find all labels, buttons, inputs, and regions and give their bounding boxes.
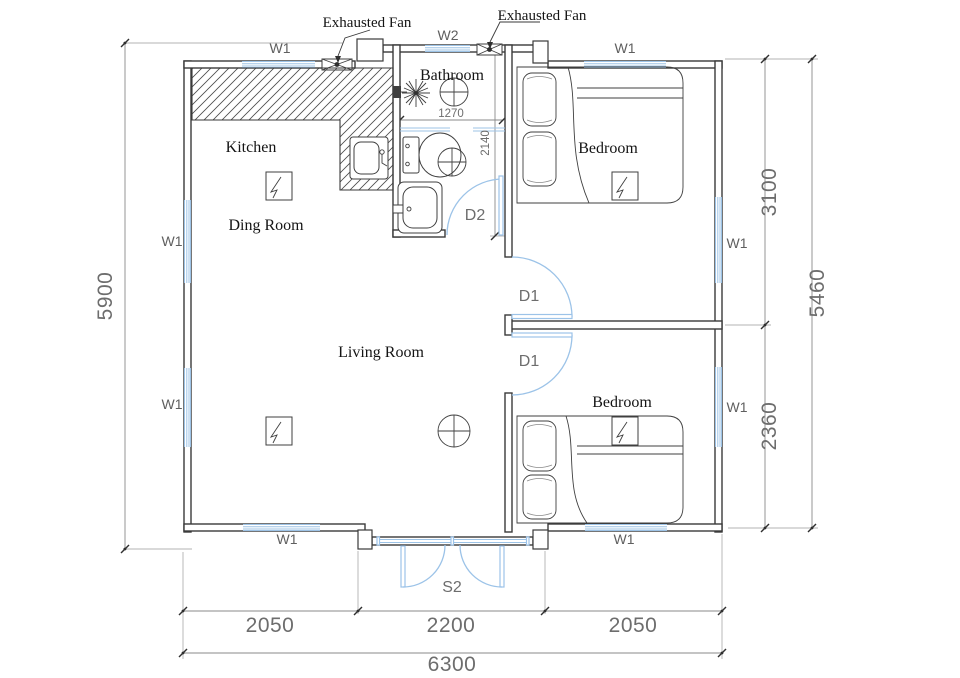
dim-bathroom-width: 1270	[438, 108, 464, 120]
ceiling-light-icon-living	[438, 415, 470, 447]
dim-right-total: 5460	[806, 269, 829, 318]
room-label-bedroom-top: Bedroom	[578, 140, 638, 157]
window-label-w1-top-left: W1	[270, 40, 291, 56]
dim-bottom-center: 2200	[427, 614, 476, 637]
column-bottom-right	[533, 530, 548, 549]
wall-left	[184, 61, 191, 532]
window-label-w1-top-right: W1	[615, 40, 636, 56]
column-bottom-left	[358, 530, 372, 549]
exhausted-fan-label-left: Exhausted Fan	[323, 15, 412, 31]
column-top	[533, 41, 548, 63]
switch-icon-bedroom-top	[612, 172, 638, 200]
window-label-w1-left-upper: W1	[162, 233, 183, 249]
room-label-kitchen: Kitchen	[226, 139, 277, 156]
floor-plan-canvas: Exhausted Fan Exhausted Fan Bathroom Kit…	[0, 0, 960, 678]
room-label-bedroom-bottom: Bedroom	[592, 394, 652, 411]
dim-bottom-right: 2050	[609, 614, 658, 637]
window-label-w1-bottom-right: W1	[614, 531, 635, 547]
window-w1-left-lower	[184, 368, 191, 447]
window-label-w1-right-upper: W1	[727, 235, 748, 251]
door-label-d1-upper: D1	[519, 288, 540, 305]
wall-right	[715, 61, 722, 532]
wall-center-stub	[505, 315, 512, 335]
kitchen-sink-icon	[350, 137, 388, 179]
switch-icon-bedroom-bottom	[612, 417, 638, 445]
dim-right-upper: 3100	[758, 168, 781, 217]
floor-plan-page: Exhausted Fan Exhausted Fan Bathroom Kit…	[0, 0, 960, 678]
window-w2-bathroom	[425, 45, 470, 52]
window-label-w1-bottom-left: W1	[277, 531, 298, 547]
window-w1-bottom-left	[243, 524, 320, 531]
column-fan-duct	[357, 39, 383, 61]
window-w1-right-lower	[715, 367, 722, 447]
bed-icon-top	[517, 67, 683, 203]
exhausted-fan-label-right: Exhausted Fan	[498, 8, 587, 24]
wall-center-lower	[505, 393, 512, 532]
vanity-sink-icon	[393, 182, 442, 233]
window-label-w1-left-lower: W1	[162, 396, 183, 412]
window-w1-bottom-right	[585, 524, 667, 531]
switch-icon-dining	[266, 172, 292, 200]
dim-overall-width: 6300	[428, 653, 477, 676]
switch-icon-living	[266, 417, 292, 445]
wall-bedroom-divider	[507, 321, 722, 329]
room-label-living: Living Room	[338, 344, 424, 361]
ceiling-light-icon-bathroom-lower	[438, 148, 466, 176]
window-w1-right-upper	[715, 197, 722, 283]
window-w1-top-left	[242, 61, 315, 68]
dimension-lines	[121, 39, 818, 659]
dim-right-lower: 2360	[758, 402, 781, 451]
dim-left-height: 5900	[94, 272, 117, 321]
bed-icon-bottom	[517, 416, 683, 523]
door-label-d1-lower: D1	[519, 353, 540, 370]
dim-bottom-left: 2050	[246, 614, 295, 637]
window-w1-left-upper	[184, 200, 191, 283]
dim-bathroom-depth: 2140	[480, 130, 492, 156]
room-label-dining: Ding Room	[228, 217, 304, 234]
room-label-bathroom: Bathroom	[420, 67, 485, 84]
window-label-w1-right-lower: W1	[727, 399, 748, 415]
door-label-d2: D2	[465, 207, 486, 224]
wall-center-upper	[505, 45, 512, 257]
window-label-w2: W2	[438, 27, 459, 43]
door-label-s2: S2	[442, 579, 462, 596]
